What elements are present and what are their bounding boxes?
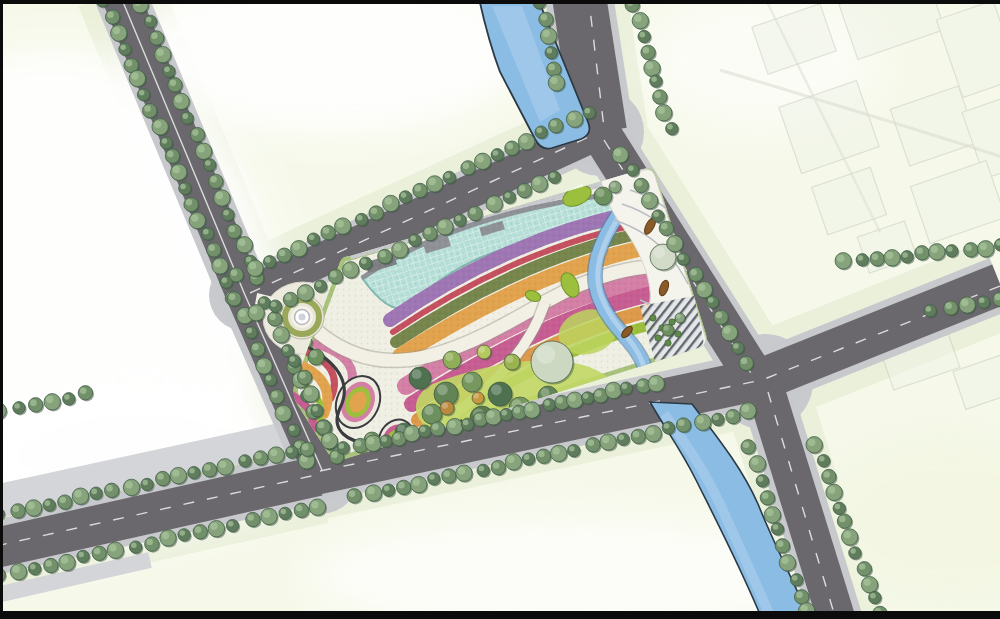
- street-tree-highlight: [229, 293, 235, 299]
- park-tree: [662, 324, 674, 336]
- street-tree-highlight: [14, 403, 20, 409]
- street-tree-highlight: [542, 30, 549, 37]
- street-tree-highlight: [263, 510, 270, 517]
- street-tree-highlight: [125, 481, 132, 488]
- park-tree-highlight: [664, 325, 669, 330]
- street-tree-highlight: [550, 120, 556, 126]
- street-tree-highlight: [858, 255, 864, 261]
- street-tree-highlight: [269, 313, 275, 319]
- street-tree-highlight: [837, 255, 844, 262]
- park-tree-highlight: [596, 189, 604, 197]
- street-tree-highlight: [179, 530, 185, 536]
- street-tree-highlight: [293, 243, 300, 250]
- street-tree-highlight: [238, 239, 245, 246]
- street-tree-highlight: [197, 145, 204, 152]
- street-tree-highlight: [240, 456, 246, 462]
- street-tree-highlight: [283, 346, 289, 352]
- street-tree-highlight: [550, 173, 556, 179]
- street-tree-highlight: [167, 151, 173, 157]
- street-tree-highlight: [175, 95, 182, 102]
- street-tree-highlight: [305, 388, 312, 395]
- street-tree-highlight: [455, 216, 461, 222]
- street-tree-highlight: [477, 155, 484, 162]
- street-tree-highlight: [330, 271, 336, 277]
- street-tree-highlight: [131, 72, 138, 79]
- street-tree-highlight: [107, 12, 113, 18]
- street-tree-highlight: [458, 467, 465, 474]
- street-tree-highlight: [180, 184, 186, 190]
- street-tree-highlight: [229, 226, 235, 232]
- street-tree-highlight: [275, 329, 282, 336]
- park-tree: [504, 354, 520, 370]
- park-tree-highlight: [506, 356, 513, 363]
- street-tree-highlight: [556, 397, 562, 403]
- street-tree-highlight: [265, 257, 271, 263]
- street-tree-highlight: [258, 360, 265, 367]
- street-tree-highlight: [965, 244, 971, 250]
- street-tree-highlight: [947, 246, 953, 252]
- street-tree-highlight: [331, 451, 337, 457]
- street-tree-highlight: [59, 497, 65, 503]
- street-tree-highlight: [144, 105, 150, 111]
- street-tree-highlight: [189, 468, 195, 474]
- park-tree: [609, 181, 621, 193]
- masterplan-drawing: [0, 0, 1000, 619]
- street-tree-highlight: [210, 523, 217, 530]
- street-tree-highlight: [361, 259, 367, 265]
- street-tree-highlight: [312, 406, 318, 412]
- street-tree-highlight: [819, 456, 825, 462]
- shrub: [665, 340, 671, 346]
- street-tree-highlight: [280, 509, 286, 515]
- park-tree-highlight: [437, 384, 448, 395]
- street-tree-highlight: [94, 548, 100, 554]
- street-tree-highlight: [406, 427, 413, 434]
- park-tree-highlight: [310, 351, 317, 358]
- street-tree-highlight: [231, 269, 237, 275]
- street-tree-highlight: [64, 394, 70, 400]
- street-tree-highlight: [13, 505, 19, 511]
- street-tree-highlight: [398, 482, 404, 488]
- street-tree-highlight: [664, 423, 670, 429]
- street-tree-highlight: [208, 244, 214, 250]
- street-tree-highlight: [401, 192, 407, 198]
- street-tree-highlight: [415, 185, 421, 191]
- street-tree-highlight: [568, 113, 575, 120]
- street-tree-highlight: [538, 451, 544, 457]
- street-tree-highlight: [131, 542, 137, 548]
- street-tree-highlight: [835, 504, 841, 510]
- street-tree-highlight: [249, 262, 256, 269]
- street-tree-highlight: [448, 420, 455, 427]
- shrub: [675, 331, 681, 337]
- street-tree-highlight: [172, 469, 179, 476]
- street-tree-highlight: [109, 544, 116, 551]
- street-tree-highlight: [146, 17, 152, 23]
- street-tree-highlight: [792, 575, 798, 581]
- street-tree-highlight: [501, 410, 507, 416]
- park-tree: [488, 382, 512, 406]
- street-tree-highlight: [980, 243, 987, 250]
- frame-top-bar: [0, 0, 1000, 4]
- street-tree-highlight: [309, 234, 315, 240]
- street-tree-highlight: [640, 32, 646, 38]
- street-tree-highlight: [425, 228, 431, 234]
- street-tree-highlight: [844, 531, 851, 538]
- street-tree-highlight: [12, 566, 19, 573]
- street-tree-highlight: [45, 500, 51, 506]
- street-tree-highlight: [585, 108, 591, 114]
- street-tree-highlight: [394, 244, 401, 251]
- street-tree-highlight: [349, 490, 355, 496]
- street-tree-highlight: [728, 411, 734, 417]
- street-tree-highlight: [429, 474, 435, 480]
- street-tree-highlight: [619, 435, 625, 441]
- street-tree-highlight: [157, 48, 164, 55]
- street-tree-highlight: [475, 414, 481, 420]
- street-tree-highlight: [588, 439, 594, 445]
- street-tree-highlight: [886, 252, 893, 259]
- street-tree-highlight: [344, 264, 351, 271]
- street-tree-highlight: [569, 446, 575, 452]
- street-tree-highlight: [154, 121, 161, 128]
- street-tree-highlight: [519, 185, 525, 191]
- street-tree-highlight: [470, 208, 476, 214]
- street-tree-highlight: [290, 356, 296, 362]
- park-tree-highlight: [536, 345, 555, 364]
- street-tree-highlight: [463, 162, 469, 168]
- street-tree-highlight: [650, 377, 657, 384]
- street-tree-highlight: [643, 195, 650, 202]
- street-tree-highlight: [636, 180, 642, 186]
- street-tree-highlight: [413, 478, 420, 485]
- street-tree-highlight: [379, 251, 385, 257]
- park-tree: [477, 345, 491, 359]
- street-tree-highlight: [622, 383, 628, 389]
- street-tree-highlight: [367, 437, 374, 444]
- street-tree-highlight: [394, 433, 400, 439]
- frame-bottom-bar: [0, 611, 1000, 619]
- street-tree-highlight: [74, 490, 81, 497]
- street-tree-highlight: [410, 236, 416, 242]
- park-tree-highlight: [445, 353, 453, 361]
- street-tree-highlight: [162, 138, 168, 144]
- street-tree-highlight: [222, 277, 228, 283]
- street-tree-highlight: [839, 516, 845, 522]
- street-tree-highlight: [742, 405, 749, 412]
- street-tree-highlight: [505, 193, 511, 199]
- street-tree-highlight: [255, 453, 261, 459]
- street-tree-highlight: [385, 197, 392, 204]
- street-tree-highlight: [30, 564, 36, 570]
- street-tree-highlight: [487, 411, 494, 418]
- street-tree-highlight: [902, 252, 908, 258]
- street-tree-highlight: [113, 27, 120, 34]
- street-tree-highlight: [653, 211, 659, 217]
- street-tree-highlight: [439, 221, 446, 228]
- street-tree-highlight: [384, 486, 390, 492]
- street-tree-highlight: [520, 136, 527, 143]
- street-tree-highlight: [548, 64, 554, 70]
- park-tree-highlight: [465, 374, 474, 383]
- street-tree-highlight: [186, 199, 192, 205]
- street-tree-highlight: [30, 399, 36, 405]
- street-tree-highlight: [139, 90, 145, 96]
- street-tree-highlight: [367, 487, 374, 494]
- street-tree-highlight: [698, 283, 705, 290]
- street-tree-highlight: [524, 454, 530, 460]
- street-tree-highlight: [870, 593, 876, 599]
- street-tree-highlight: [781, 557, 788, 564]
- street-tree-highlight: [420, 427, 426, 433]
- street-tree-highlight: [126, 60, 132, 66]
- street-tree-highlight: [428, 178, 435, 185]
- street-tree-highlight: [479, 466, 485, 472]
- frame-left-bar: [0, 0, 3, 619]
- park-tree-highlight: [479, 346, 485, 352]
- street-tree-highlight: [311, 501, 318, 508]
- shrub: [655, 335, 661, 341]
- street-tree-highlight: [654, 92, 660, 98]
- park-tree-highlight: [653, 247, 665, 259]
- street-tree-highlight: [533, 178, 540, 185]
- street-tree-highlight: [583, 393, 589, 399]
- street-tree-highlight: [507, 143, 513, 149]
- street-tree-highlight: [228, 521, 234, 527]
- street-tree-highlight: [250, 307, 257, 314]
- street-tree-highlight: [289, 426, 295, 432]
- street-tree-highlight: [773, 524, 779, 530]
- street-tree-highlight: [751, 458, 758, 465]
- street-tree-highlight: [61, 556, 68, 563]
- street-tree-highlight: [602, 436, 609, 443]
- street-tree-highlight: [46, 396, 53, 403]
- park-tree: [462, 372, 482, 392]
- street-tree-highlight: [443, 471, 449, 477]
- street-tree-highlight: [195, 526, 201, 532]
- street-tree-highlight: [287, 447, 293, 453]
- street-tree-highlight: [743, 441, 749, 447]
- street-tree-highlight: [337, 220, 344, 227]
- street-tree-highlight: [279, 250, 285, 256]
- park-tree-highlight: [425, 406, 434, 415]
- street-tree-highlight: [800, 605, 807, 612]
- park-tree-highlight: [412, 369, 422, 379]
- street-tree-highlight: [357, 215, 363, 221]
- park-tree: [531, 341, 573, 383]
- street-tree-highlight: [859, 563, 865, 569]
- street-tree-highlight: [277, 407, 284, 414]
- street-tree-highlight: [223, 210, 229, 216]
- street-tree-highlight: [216, 192, 223, 199]
- site-plan-canvas: [0, 0, 1000, 619]
- street-tree-highlight: [252, 344, 258, 350]
- street-tree-highlight: [203, 229, 209, 235]
- street-tree-highlight: [80, 387, 86, 393]
- street-tree-highlight: [550, 77, 557, 84]
- park-tree: [440, 401, 454, 415]
- street-tree-highlight: [27, 502, 34, 509]
- street-tree-highlight: [595, 390, 601, 396]
- street-tree-highlight: [823, 471, 829, 477]
- street-tree-highlight: [541, 14, 547, 20]
- street-tree-highlight: [917, 247, 923, 253]
- street-tree-highlight: [758, 476, 764, 482]
- park-tree: [472, 392, 484, 404]
- street-tree-highlight: [741, 358, 747, 364]
- street-tree-highlight: [432, 424, 438, 430]
- street-tree-highlight: [445, 173, 451, 179]
- street-tree-highlight: [633, 431, 639, 437]
- street-tree-highlight: [371, 208, 377, 214]
- park-tree-highlight: [442, 402, 448, 408]
- street-tree-highlight: [634, 15, 641, 22]
- street-tree-highlight: [961, 299, 968, 306]
- street-tree-highlight: [544, 400, 550, 406]
- street-tree-highlight: [872, 253, 878, 259]
- street-tree-highlight: [716, 312, 722, 318]
- street-tree-highlight: [777, 540, 783, 546]
- street-tree-highlight: [205, 160, 211, 166]
- street-tree-highlight: [690, 269, 696, 275]
- street-tree-highlight: [569, 394, 576, 401]
- street-tree-highlight: [271, 301, 277, 307]
- street-tree-highlight: [91, 489, 97, 495]
- street-tree-highlight: [488, 198, 495, 205]
- street-tree-highlight: [151, 33, 157, 39]
- street-tree-highlight: [318, 422, 324, 428]
- street-tree-highlight: [493, 462, 499, 468]
- street-tree-highlight: [247, 328, 253, 334]
- street-tree-highlight: [106, 485, 112, 491]
- street-tree-highlight: [78, 552, 84, 558]
- street-tree-highlight: [323, 227, 329, 233]
- street-tree-highlight: [157, 473, 163, 479]
- street-tree-highlight: [247, 514, 253, 520]
- street-tree-highlight: [628, 165, 634, 171]
- park-tree: [422, 404, 442, 424]
- street-tree-highlight: [219, 461, 226, 468]
- street-tree-highlight: [120, 45, 126, 51]
- street-tree-highlight: [142, 480, 148, 486]
- street-tree-highlight: [239, 309, 246, 316]
- street-tree-highlight: [766, 509, 773, 516]
- street-tree-highlight: [547, 48, 553, 54]
- street-tree-highlight: [339, 443, 345, 449]
- street-tree-highlight: [658, 107, 665, 114]
- park-tree: [675, 313, 685, 323]
- street-tree-highlight: [214, 260, 221, 267]
- street-tree-highlight: [266, 375, 272, 381]
- street-tree-highlight: [651, 76, 657, 82]
- street-tree-highlight: [170, 79, 176, 85]
- street-tree-highlight: [647, 427, 654, 434]
- street-tree-highlight: [638, 380, 644, 386]
- street-tree-highlight: [828, 486, 835, 493]
- street-tree-highlight: [381, 436, 387, 442]
- park-tree-highlight: [474, 393, 479, 398]
- street-tree-highlight: [493, 150, 499, 156]
- street-tree-highlight: [146, 539, 152, 545]
- street-tree-highlight: [945, 303, 951, 309]
- street-tree-highlight: [713, 415, 719, 421]
- street-tree-highlight: [355, 440, 361, 446]
- park-tree-highlight: [611, 182, 616, 187]
- street-tree-highlight: [299, 372, 305, 378]
- street-tree-highlight: [260, 298, 266, 304]
- street-tree-highlight: [614, 149, 621, 156]
- park-tree: [443, 351, 461, 369]
- street-tree-highlight: [863, 579, 870, 586]
- street-tree-highlight: [270, 449, 277, 456]
- street-tree-highlight: [643, 47, 649, 53]
- street-tree-highlight: [316, 281, 322, 287]
- street-tree-highlight: [808, 439, 815, 446]
- street-tree-highlight: [323, 435, 330, 442]
- park-tree-highlight: [676, 314, 681, 319]
- street-tree-highlight: [45, 560, 51, 566]
- street-tree-highlight: [271, 391, 277, 397]
- street-tree-highlight: [926, 306, 932, 312]
- street-tree-highlight: [723, 326, 730, 333]
- street-tree-highlight: [733, 343, 739, 349]
- street-tree-highlight: [678, 420, 684, 426]
- street-tree-highlight: [607, 384, 614, 391]
- street-tree-highlight: [796, 591, 802, 597]
- street-tree-highlight: [697, 416, 704, 423]
- street-tree-highlight: [661, 223, 667, 229]
- street-tree-highlight: [536, 128, 542, 134]
- street-tree-highlight: [302, 444, 308, 450]
- street-tree-highlight: [931, 246, 938, 253]
- street-tree-highlight: [762, 492, 768, 498]
- street-tree-highlight: [514, 407, 520, 413]
- street-tree-highlight: [191, 214, 198, 221]
- street-tree-highlight: [204, 464, 210, 470]
- street-tree-highlight: [162, 532, 169, 539]
- street-tree-highlight: [646, 62, 653, 69]
- park-tree: [409, 367, 431, 389]
- street-tree-highlight: [667, 124, 673, 130]
- park-tree: [308, 349, 324, 365]
- street-tree-highlight: [299, 287, 306, 294]
- street-tree-highlight: [708, 297, 714, 303]
- street-tree-highlight: [507, 456, 514, 463]
- street-tree-highlight: [210, 176, 216, 182]
- street-tree-highlight: [164, 67, 170, 73]
- street-tree-highlight: [526, 404, 533, 411]
- street-tree-highlight: [173, 166, 180, 173]
- street-tree-highlight: [182, 113, 188, 119]
- street-tree-highlight: [850, 548, 856, 554]
- street-tree-highlight: [192, 129, 198, 135]
- street-tree-highlight: [669, 238, 676, 245]
- street-tree-highlight: [285, 294, 291, 300]
- park-tree-highlight: [491, 384, 502, 395]
- street-tree-highlight: [463, 420, 469, 426]
- street-tree-highlight: [979, 297, 985, 303]
- shrub: [650, 315, 656, 321]
- street-tree-highlight: [552, 447, 559, 454]
- street-tree-highlight: [296, 505, 302, 511]
- street-tree-highlight: [679, 254, 685, 260]
